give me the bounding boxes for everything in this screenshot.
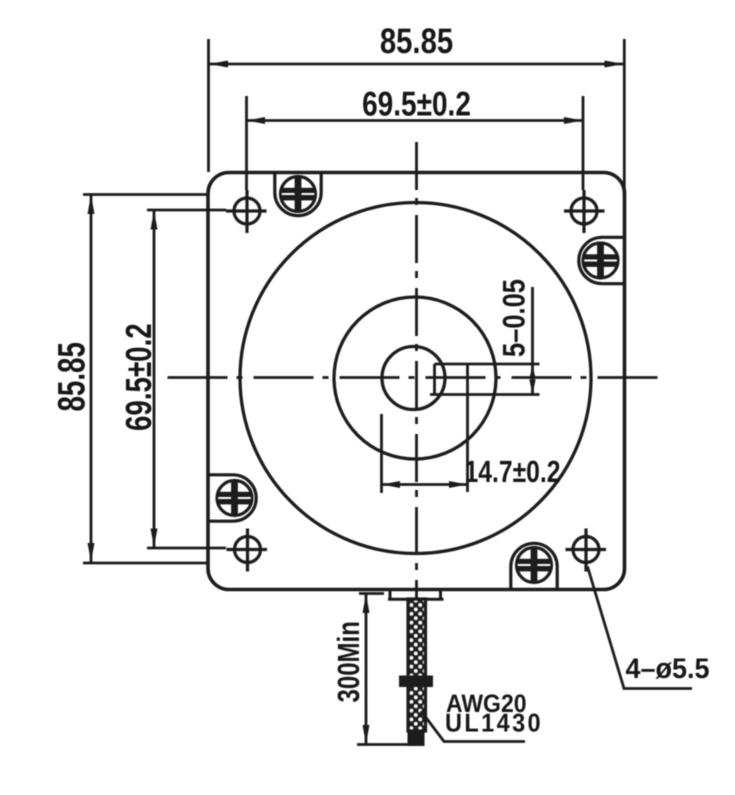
svg-text:5–0.05: 5–0.05 (497, 279, 532, 357)
svg-text:14.7±0.2: 14.7±0.2 (465, 454, 561, 489)
svg-text:300Min: 300Min (332, 621, 367, 702)
svg-text:85.85: 85.85 (50, 342, 92, 411)
svg-text:69.5±0.2: 69.5±0.2 (362, 85, 471, 123)
svg-text:85.85: 85.85 (380, 23, 453, 62)
svg-text:4–ø5.5: 4–ø5.5 (626, 653, 710, 685)
svg-text:69.5±0.2: 69.5±0.2 (119, 323, 159, 431)
svg-text:UL1430: UL1430 (445, 708, 543, 737)
